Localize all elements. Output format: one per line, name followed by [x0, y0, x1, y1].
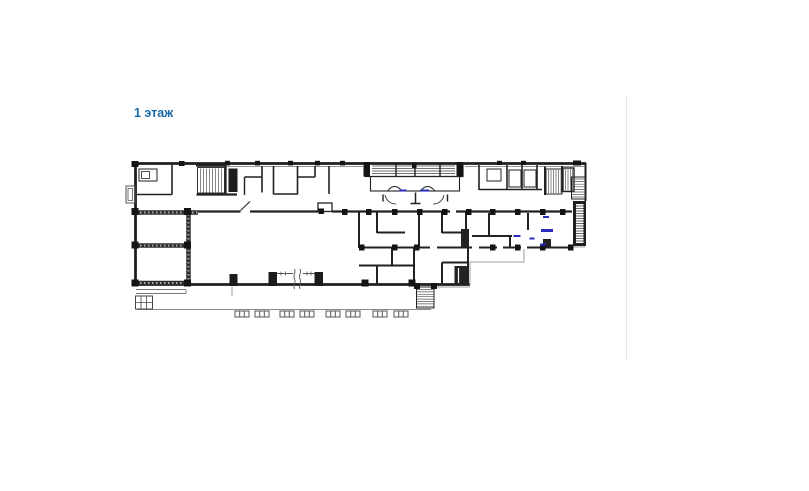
entrance-canopy: [364, 162, 464, 204]
left-rooms-walls: [132, 208, 199, 287]
floor-plan-drawing: [0, 0, 809, 491]
top-right-rooms: [479, 161, 581, 196]
stairs-nw: [198, 168, 225, 194]
break-symbol: [294, 269, 301, 289]
terrace-outline: [136, 247, 585, 310]
door-leaf: [241, 202, 251, 211]
column-divider-line: [626, 96, 627, 360]
bay-window: [126, 186, 135, 203]
elevator-shaft: [229, 169, 238, 193]
south-colonnade: [235, 311, 408, 317]
vestibule: [371, 177, 460, 192]
south-stairs: [414, 283, 437, 308]
right-wing-walls: [339, 212, 572, 286]
main-entrance-portal: [230, 269, 324, 289]
page: 1 этаж: [0, 0, 809, 491]
door-swings: [385, 195, 444, 204]
west-steps: [136, 296, 153, 309]
top-left-rooms: [137, 165, 339, 212]
